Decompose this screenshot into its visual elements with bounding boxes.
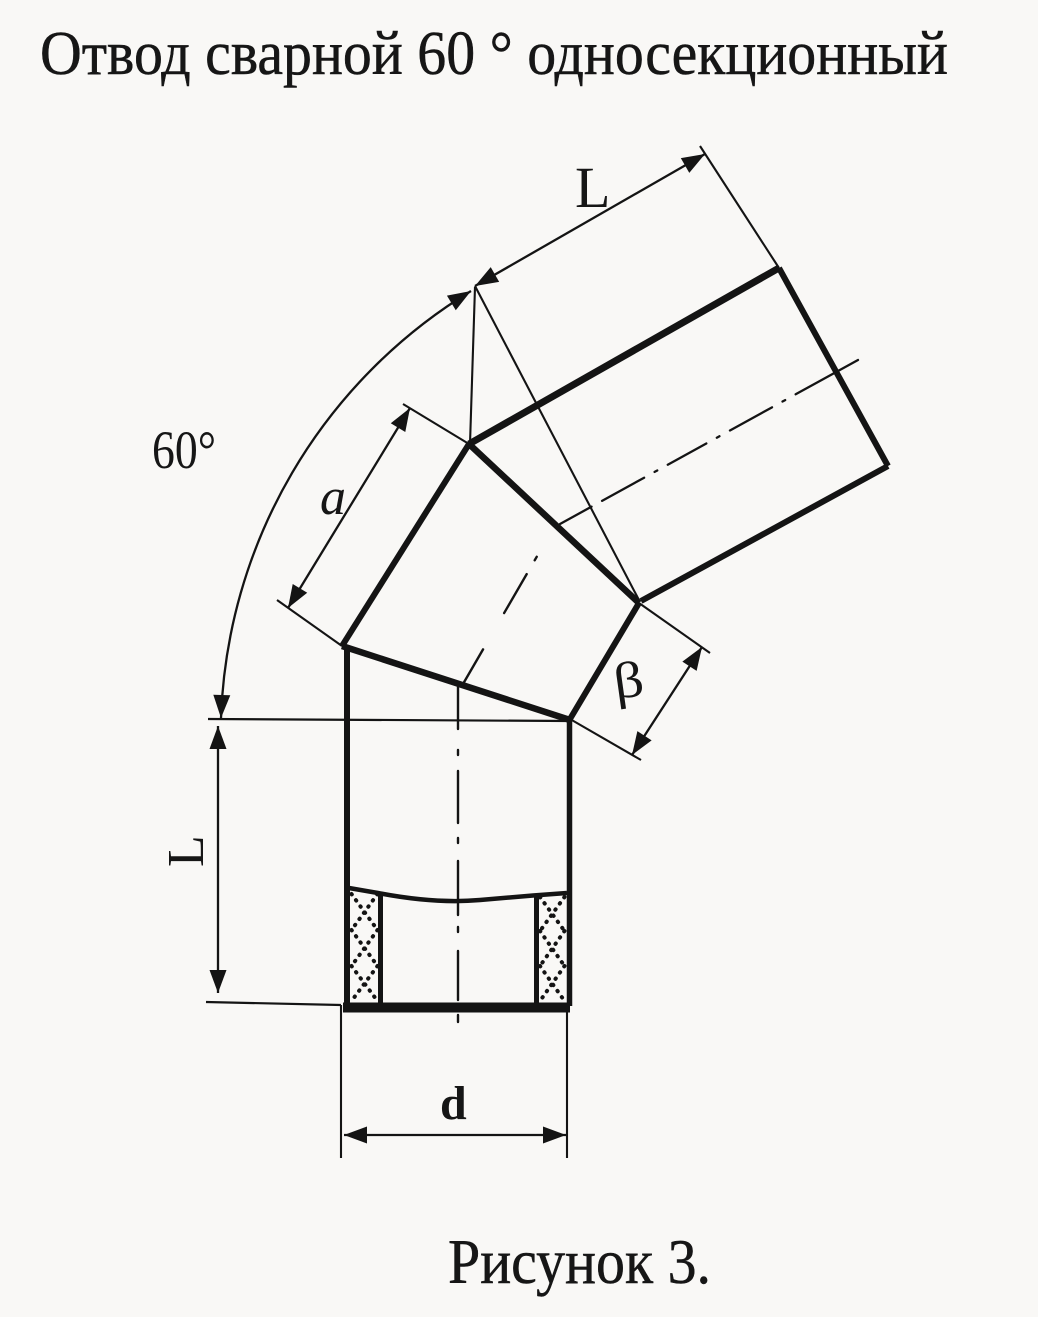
svg-text:Отвод сварной 60 ° односекцион: Отвод сварной 60 ° односекционный — [40, 20, 948, 88]
svg-text:L: L — [575, 155, 610, 220]
svg-text:d: d — [440, 1077, 467, 1130]
svg-text:Рисунок 3.: Рисунок 3. — [448, 1227, 711, 1297]
svg-text:L: L — [158, 835, 215, 867]
svg-text:60°: 60° — [152, 420, 216, 480]
svg-text:a: a — [320, 469, 346, 526]
svg-text:β: β — [610, 651, 648, 711]
